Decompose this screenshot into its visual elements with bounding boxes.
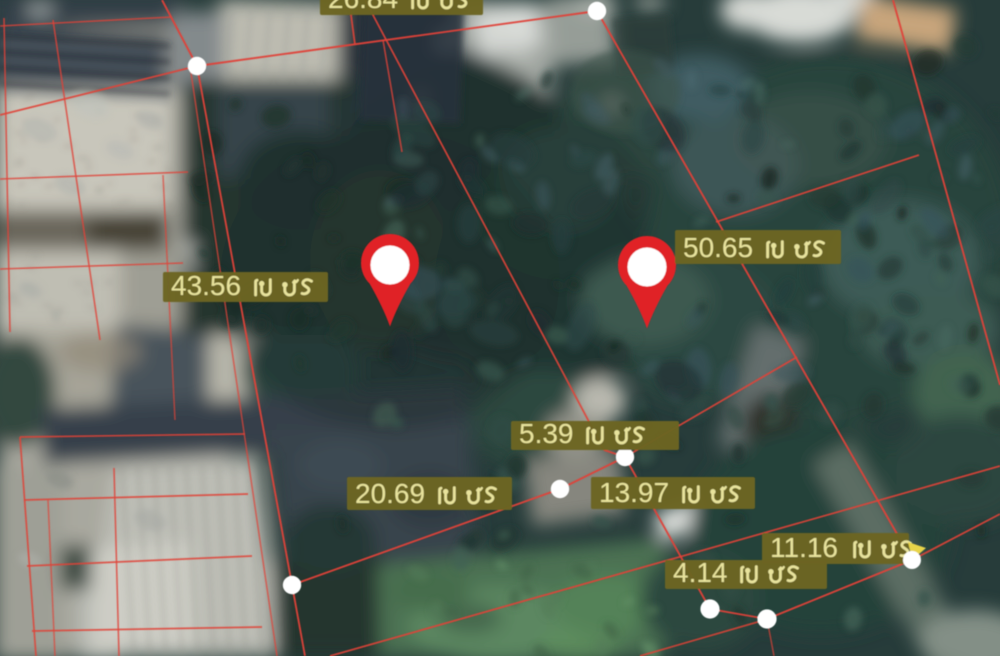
svg-text:11.16: 11.16 [770, 532, 838, 563]
svg-text:4.14: 4.14 [673, 557, 728, 588]
svg-text:13.97: 13.97 [599, 477, 669, 508]
svg-text:5.39: 5.39 [519, 418, 574, 449]
svg-text:20.69: 20.69 [355, 478, 425, 509]
svg-text:43.56: 43.56 [171, 270, 241, 301]
svg-text:26.84: 26.84 [328, 0, 398, 14]
svg-text:50.65: 50.65 [683, 232, 753, 263]
